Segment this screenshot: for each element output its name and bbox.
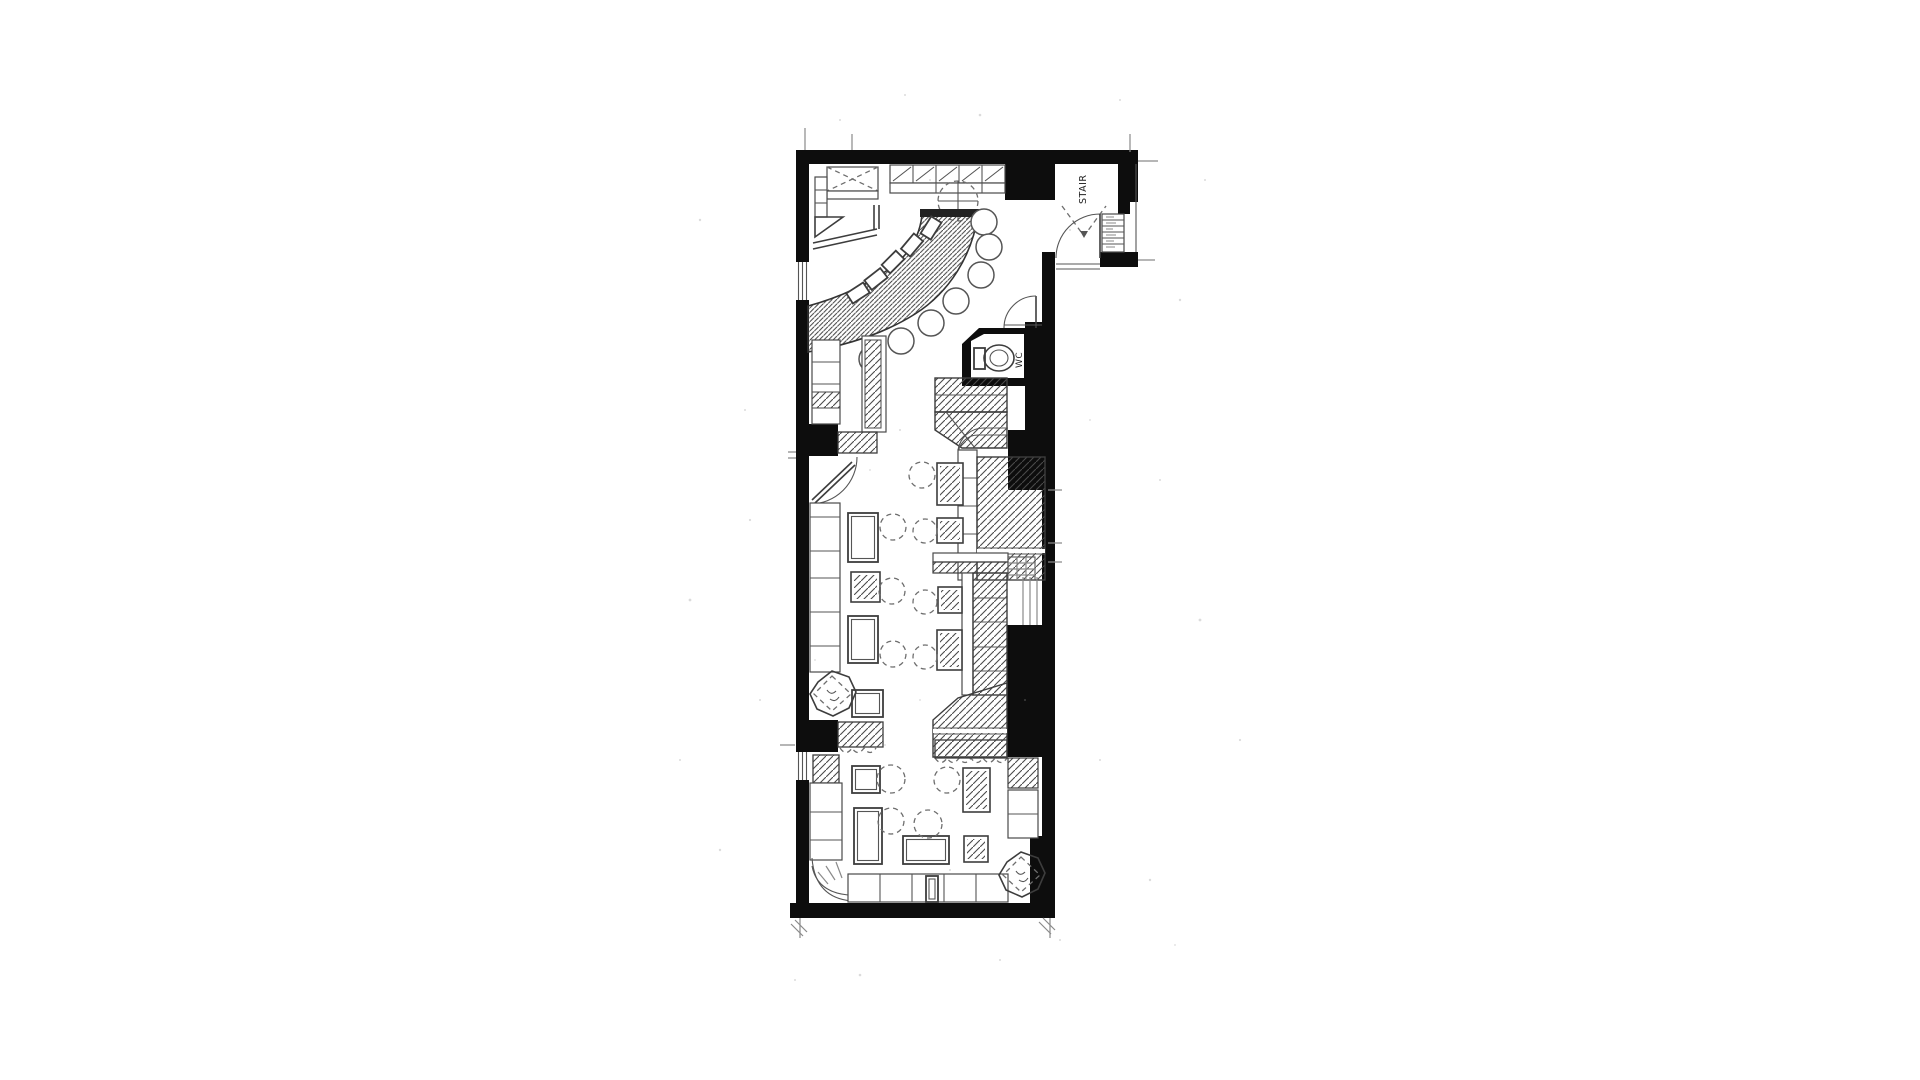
- stair-room-right-step: [1118, 202, 1130, 214]
- chairs: [879, 462, 937, 669]
- back-bar-shelving: [890, 165, 1005, 193]
- left-pier-low: [809, 720, 838, 752]
- entry-steps: [1102, 214, 1124, 252]
- bar-stool: [888, 328, 914, 354]
- bottom-wall: [790, 903, 1055, 918]
- floor-plan-drawing: STAIR WC: [0, 0, 1920, 1080]
- lounge-chairs: [877, 765, 960, 838]
- stair-room-right-wall: [1118, 150, 1138, 202]
- lounge-tables: [852, 766, 990, 864]
- scanned-page: STAIR WC: [0, 0, 1920, 1080]
- vestibule-bottom-wall: [1100, 252, 1138, 267]
- hatched-table: [851, 572, 880, 602]
- bar-stool: [968, 262, 994, 288]
- plants-edge: [840, 748, 876, 753]
- banquette: [810, 503, 840, 672]
- hatched-table: [938, 587, 962, 613]
- bar-stool: [976, 234, 1002, 260]
- dumbwaiter-box: [827, 167, 878, 199]
- plants-edge: [935, 758, 1007, 763]
- top-wall: [796, 150, 1138, 164]
- stair-arrow-head: [1080, 231, 1088, 238]
- dining-area: [810, 432, 963, 753]
- bar-counter-cap: [920, 209, 980, 217]
- wc-door: [1004, 296, 1042, 328]
- hatched-table: [937, 518, 963, 543]
- rear-lounge: [810, 740, 1045, 902]
- bar-stool: [943, 288, 969, 314]
- stair-label: STAIR: [1078, 175, 1089, 205]
- hatched-table: [937, 463, 963, 505]
- bar-stool: [971, 209, 997, 235]
- hatched-table: [937, 630, 962, 670]
- right-mass-corner: [1030, 836, 1055, 905]
- lounge-bench-left: [810, 783, 852, 901]
- bar-stool: [918, 310, 944, 336]
- octagon-planter: [810, 671, 856, 716]
- service-spine: [812, 336, 886, 432]
- wc-label: WC: [1015, 352, 1025, 368]
- mid-door: [810, 457, 857, 504]
- lounge-bench-right: [1008, 758, 1038, 838]
- hatched-table: [963, 768, 990, 812]
- entry-door: [1056, 214, 1100, 269]
- left-pier-mid: [809, 424, 838, 456]
- pier-top-right: [1005, 164, 1055, 200]
- right-mass-b: [1007, 625, 1048, 757]
- left-wall-lower: [796, 780, 809, 910]
- left-wall-middle: [796, 300, 809, 752]
- left-wall-upper: [796, 150, 809, 262]
- hatched-table: [964, 836, 988, 862]
- lounge-bench-bottom: [848, 874, 1008, 902]
